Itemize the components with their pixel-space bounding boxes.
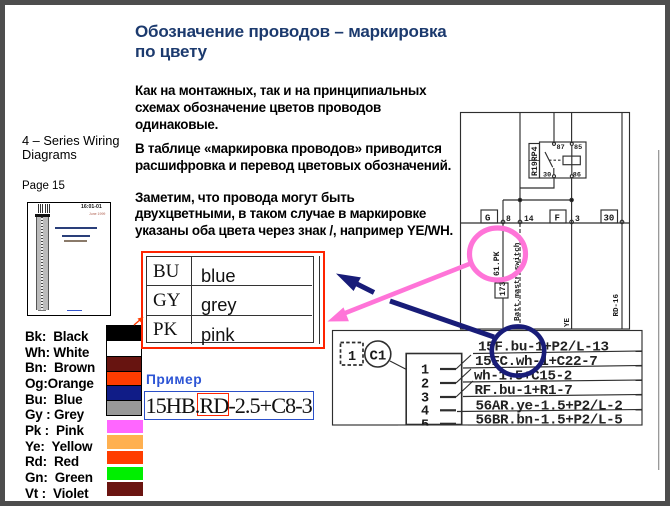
svg-text:1: 1 (421, 364, 429, 379)
svg-text:R19RP4: R19RP4 (531, 146, 540, 176)
svg-text:85: 85 (574, 144, 582, 152)
svg-text:8: 8 (506, 215, 511, 224)
svg-text:G: G (485, 214, 490, 224)
svg-text:RF.bu-1+R1-7: RF.bu-1+R1-7 (475, 383, 573, 399)
svg-text:2: 2 (421, 378, 429, 393)
svg-text:61.PK: 61.PK (493, 251, 502, 276)
svg-text:C1: C1 (370, 349, 387, 365)
svg-text:RD-16: RD-16 (613, 293, 621, 316)
svg-text:30: 30 (543, 172, 551, 180)
svg-text:173: 173 (499, 281, 508, 296)
svg-text:YE: YE (564, 317, 572, 327)
svg-text:87: 87 (557, 144, 565, 152)
svg-text:3: 3 (575, 215, 580, 224)
svg-text:30: 30 (604, 214, 615, 224)
svg-text:86: 86 (573, 172, 581, 180)
svg-text:14: 14 (524, 215, 534, 224)
svg-text:F: F (555, 214, 560, 224)
svg-text:1: 1 (348, 350, 356, 365)
svg-text:Batt.mastr switch: Batt.mastr switch (514, 242, 522, 321)
svg-text:56BR.bn-1.5+P2/L-5: 56BR.bn-1.5+P2/L-5 (476, 413, 623, 429)
